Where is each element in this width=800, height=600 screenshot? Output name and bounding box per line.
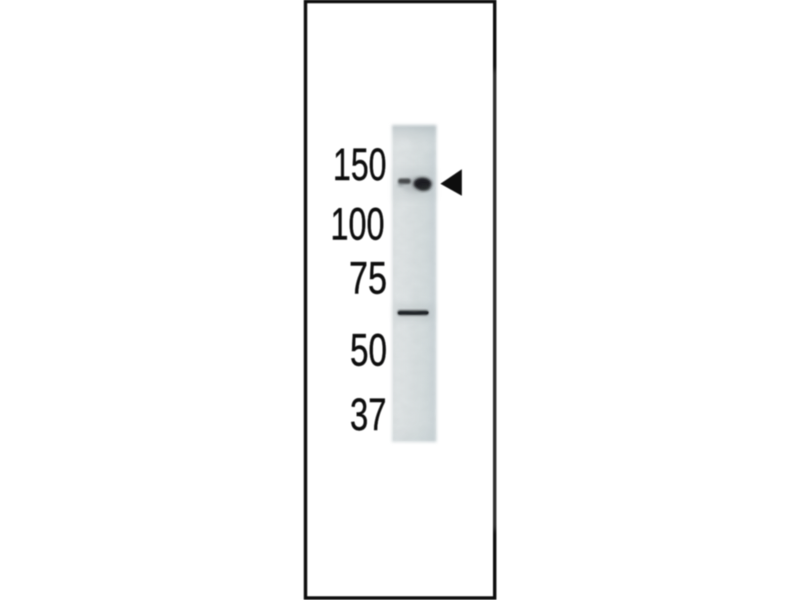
svg-text:50: 50 [350,325,387,376]
svg-text:150: 150 [333,139,387,190]
svg-text:100: 100 [331,199,385,250]
svg-text:75: 75 [349,253,387,304]
svg-text:37: 37 [350,389,387,440]
